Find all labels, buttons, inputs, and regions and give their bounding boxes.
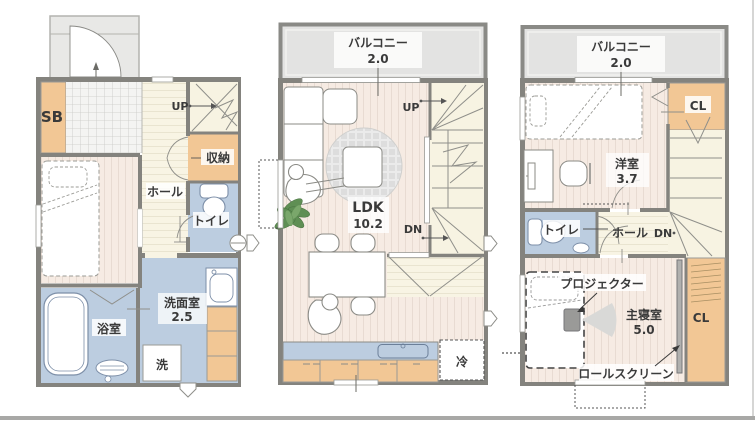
kitchen (283, 342, 438, 382)
label-closet-bottom: CL (693, 311, 710, 325)
label-closet-top: CL (690, 99, 707, 113)
label-balcony-size-f2: 2.0 (367, 52, 388, 66)
label-hall-f3: ホール (612, 226, 648, 240)
label-shoebox: SB (41, 108, 63, 126)
chair (351, 297, 375, 315)
floor-2-plan: バルコニー 2.0 UP LDK 10.2 DN 冷 (259, 25, 497, 393)
floor-3-plan: バルコニー 2.0 CL 洋室 3.7 トイレ ホール DN プロジェクター 主… (502, 27, 727, 408)
label-up-f1: UP (172, 100, 189, 113)
label-washroom-size: 2.5 (171, 310, 192, 324)
washroom-cabinets (207, 307, 237, 381)
label-toilet-f1: トイレ (193, 214, 229, 228)
label-western-room: 洋室 (615, 156, 639, 171)
vent-marker-f2-a (484, 236, 497, 251)
desk-chair (560, 161, 587, 186)
stairs-f3 (668, 130, 725, 258)
open-door-leaf-f2 (425, 137, 430, 223)
landing-f2 (387, 255, 484, 297)
roll-screen-bar (677, 260, 682, 373)
label-up-f2: UP (403, 101, 420, 114)
label-dn-f3: DN (654, 227, 672, 240)
vanity-sink (206, 268, 237, 306)
shower-drain (96, 360, 128, 376)
coffee-table (343, 147, 382, 187)
eave-outline-f2 (259, 160, 278, 228)
label-balcony-f3: バルコニー (591, 40, 651, 54)
bed-f1 (42, 161, 99, 276)
kitchen-cabinets (283, 360, 438, 382)
label-balcony-size-f3: 2.0 (610, 56, 631, 70)
label-toilet-f3: トイレ (543, 223, 579, 237)
dining-table (309, 252, 385, 297)
room-genkan (66, 82, 142, 153)
label-hall-f1: ホール (147, 185, 183, 199)
chair (315, 234, 339, 252)
label-master-bedroom: 主寝室 (626, 307, 662, 322)
label-ldk-size: 10.2 (353, 217, 383, 231)
sliding-door-f2 (389, 253, 429, 258)
floor-plan-svg: SB UP 収納 ホール トイレ 浴室 洗面室 2.5 洗 (0, 0, 755, 422)
label-roll-screen: ロールスクリーン (578, 367, 673, 381)
label-washroom: 洗面室 (164, 295, 200, 310)
label-master-bedroom-size: 5.0 (633, 323, 654, 337)
label-bath: 浴室 (97, 321, 121, 336)
eave-outline-f3 (575, 385, 645, 408)
chair (351, 234, 375, 252)
label-fridge: 冷 (456, 354, 468, 369)
label-balcony-f2: バルコニー (348, 36, 408, 50)
label-dn-f2: DN (404, 223, 422, 236)
vent-marker-f2-b (484, 311, 497, 326)
label-ldk: LDK (352, 200, 385, 216)
label-washer: 洗 (156, 357, 168, 372)
page-bottom-border (0, 416, 755, 420)
vent-marker-f1-bottom (180, 383, 196, 397)
label-western-room-size: 3.7 (616, 172, 637, 186)
person-head (322, 294, 338, 310)
label-storage: 収納 (206, 150, 230, 165)
vent-marker-f1-right (247, 235, 259, 251)
label-projector: プロジェクター (560, 276, 644, 291)
floor-plan-page: SB UP 収納 ホール トイレ 浴室 洗面室 2.5 洗 (0, 0, 755, 422)
bed-western (526, 85, 642, 139)
floor-1-plan: SB UP 収納 ホール トイレ 浴室 洗面室 2.5 洗 (36, 16, 259, 397)
